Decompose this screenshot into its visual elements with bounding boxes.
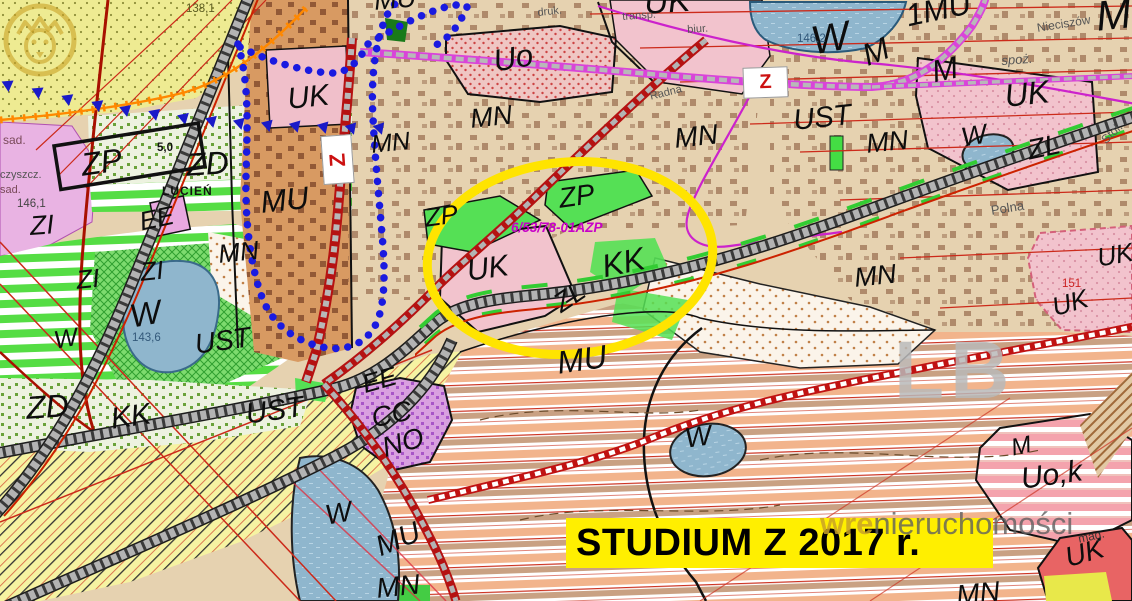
zone-label: W [52,325,80,354]
zone-label: ZD [25,389,70,424]
elevation-label: 138,1 [186,4,215,16]
zone-label: UK [1095,239,1132,271]
locality-label: LUCIEŃ [162,185,213,197]
elevation-label: 5,0 [157,143,173,155]
parcel-reference-label: 6/53/78-01AZP [511,220,603,235]
poi-label: biur. [687,24,709,36]
zone-label: W [127,295,163,333]
elevation-label: 146,1 [17,199,46,211]
lion-circle-icon [0,0,80,80]
zone-label: ZI [29,211,55,240]
zone-label: MN [469,102,514,133]
zone-label: ZP [79,143,124,180]
zone-label: Uo [491,39,535,76]
zone-label: W [959,121,989,152]
zone-label: MU [555,340,609,379]
zone-label: MN [955,577,1001,601]
zone-label: W [323,497,354,529]
zone-label: ZI [75,265,101,293]
zone-label: ZI [139,257,165,285]
road-class-marker: Z [320,134,354,185]
zone-label: MU [259,182,310,218]
zone-label: KK [599,242,647,282]
zone-label: MN [370,129,411,158]
elevation-label: 151 [1062,279,1081,291]
road-class-marker: Z [742,66,788,99]
land-use-label: sad. [3,134,26,146]
zone-label: ZP [423,200,460,230]
zone-label: MN [375,570,421,601]
poi-label: transp. [622,10,656,23]
watermark-brand: wre [820,506,873,541]
zone-label: UST [792,101,853,136]
zone-label: MN [673,120,719,152]
zone-label: ZD [185,146,230,181]
zone-label: MN [217,237,260,267]
land-use-label: sad. [0,185,21,196]
elevation-label: 143,6 [132,333,161,345]
zone-label: MU [373,0,417,15]
zone-label: M [1094,0,1132,38]
map-sheet-watermark: LB [894,330,1015,412]
zone-label: KK [109,399,153,434]
zone-label: UK [1003,75,1051,111]
zone-label: EE [137,202,176,235]
zone-label: MN [865,127,910,158]
agency-watermark: wrenieruchomości [820,508,1073,539]
elevation-label: 146,2 [797,34,826,46]
zone-label: MN [853,261,898,292]
zone-label: UK [465,251,510,287]
watermark-brand-rest: nieruchomości [873,506,1073,541]
zone-label: ZL [1025,130,1063,164]
zone-label: ZP [557,180,596,213]
zone-label: W [683,421,713,452]
zoning-map: MU UK Uo UK MN MN MN W 1MU M M M UST MN … [0,0,1132,601]
poi-label: spoż. [1001,52,1033,67]
poi-label: czyszcz. [0,170,42,181]
zone-label: UK [286,81,331,115]
